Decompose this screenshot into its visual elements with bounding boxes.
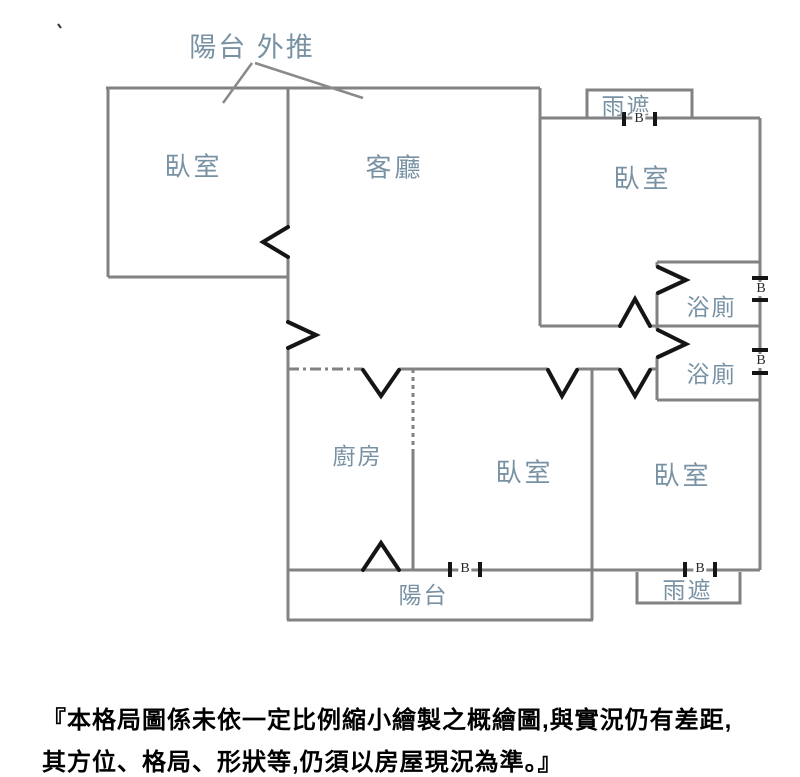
door-bedroom-top-left [263, 227, 288, 257]
annotation-balcony-pushed-out: 陽台 外推 [189, 26, 315, 65]
door-bathroom-lower [658, 330, 686, 357]
door-arches [363, 299, 650, 570]
disclaimer-line-2: 其方位、格局、形狀等,仍須以房屋現況為準。』 [42, 742, 563, 777]
room-label-bedroom-bottom-left: 臥室 [492, 453, 553, 490]
window-marker-bedroom-bottom-right: B [693, 562, 706, 576]
window-marker-balcony-wall: B [458, 562, 471, 576]
annotation-leader-lines [223, 63, 363, 103]
floorplan-drawing [0, 0, 800, 757]
room-label-bathroom-upper: 浴廁 [684, 288, 737, 322]
room-label-bedroom-top-right: 臥室 [610, 159, 671, 196]
room-label-living-room: 客廳 [362, 148, 423, 185]
room-label-balcony: 陽台 [396, 576, 449, 610]
door-bathroom-upper [658, 267, 686, 293]
window-marker-bathroom-lower: B [754, 354, 767, 368]
door-bedroom-bottom-right [620, 370, 650, 396]
door-bedroom-top-right [620, 299, 650, 326]
room-label-bedroom-bottom-right: 臥室 [650, 456, 711, 493]
room-label-kitchen: 廚房 [330, 437, 383, 471]
floorplan-page: { "floorplan": { "annotation": { "label"… [0, 0, 800, 757]
door-kitchen [363, 370, 399, 396]
window-marker-bathroom-upper: B [754, 282, 767, 296]
room-label-rain-canopy-bottom: 雨遮 [660, 571, 713, 605]
door-main-entrance [288, 322, 316, 348]
stray-mark [58, 24, 61, 28]
window-marker-bedroom-top-right: B [632, 112, 645, 126]
window-ticks [450, 112, 768, 577]
door-bedroom-bottom-left [548, 370, 577, 396]
disclaimer-line-1: 『本格局圖係未依一定比例縮小繪製之概繪圖,與實況仍有差距, [42, 700, 732, 735]
door-chevrons [263, 227, 686, 357]
room-label-bathroom-lower: 浴廁 [684, 355, 737, 389]
door-kitchen-balcony [363, 543, 399, 570]
room-label-bedroom-top-left: 臥室 [161, 147, 222, 184]
